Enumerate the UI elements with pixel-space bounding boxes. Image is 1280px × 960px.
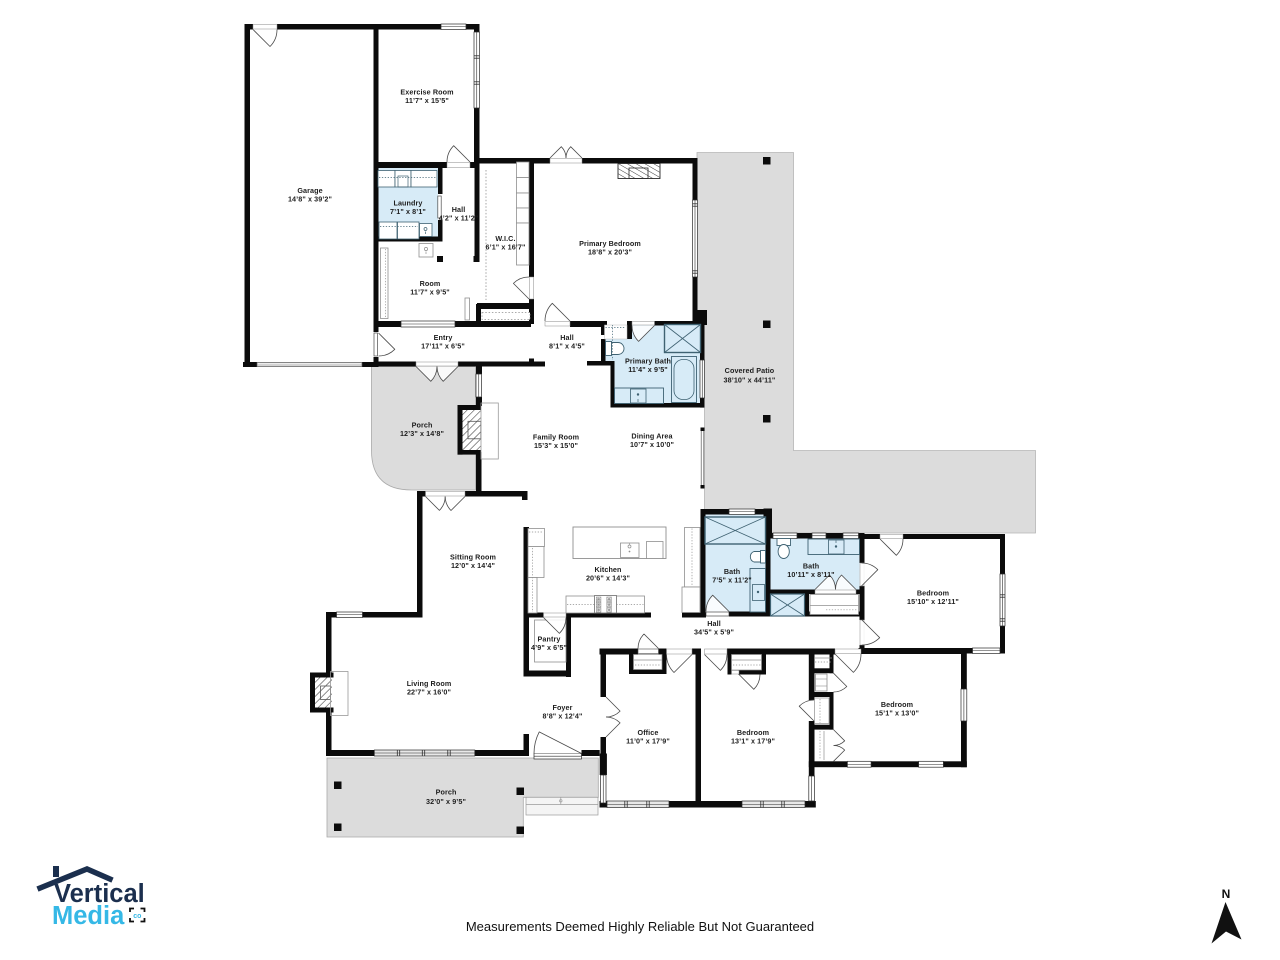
svg-text:8’8" x 12’4": 8’8" x 12’4" <box>543 712 583 721</box>
svg-text:14’8" x 39’2": 14’8" x 39’2" <box>288 195 332 204</box>
svg-text:17’11" x 6’5": 17’11" x 6’5" <box>421 342 465 351</box>
svg-text:Media: Media <box>52 902 125 930</box>
svg-text:Covered Patio: Covered Patio <box>725 366 775 375</box>
svg-text:32’0" x 9’5": 32’0" x 9’5" <box>426 797 466 806</box>
svg-text:Measurements Deemed Highly Rel: Measurements Deemed Highly Reliable But … <box>466 919 814 934</box>
svg-text:11’4" x 9’5": 11’4" x 9’5" <box>628 365 668 374</box>
svg-text:6’1" x 16’7": 6’1" x 16’7" <box>486 243 526 252</box>
svg-text:11’0" x 17’9": 11’0" x 17’9" <box>626 737 670 746</box>
svg-text:co: co <box>133 913 141 920</box>
svg-text:8’1" x 4’5": 8’1" x 4’5" <box>549 342 585 351</box>
svg-text:10’7" x 10’0": 10’7" x 10’0" <box>630 440 674 449</box>
svg-text:7’5" x 11’2": 7’5" x 11’2" <box>712 576 752 585</box>
svg-text:22’7" x 16’0": 22’7" x 16’0" <box>407 688 451 697</box>
svg-text:15’3" x 15’0": 15’3" x 15’0" <box>534 441 578 450</box>
svg-text:20’6" x 14’3": 20’6" x 14’3" <box>586 574 630 583</box>
svg-text:4’9" x 6’5": 4’9" x 6’5" <box>531 643 567 652</box>
svg-text:34’5" x 5’9": 34’5" x 5’9" <box>694 628 734 637</box>
svg-text:15’10" x 12’11": 15’10" x 12’11" <box>907 597 959 606</box>
svg-text:N: N <box>1222 887 1231 901</box>
svg-text:Porch: Porch <box>436 788 457 797</box>
svg-text:13’1" x 17’9": 13’1" x 17’9" <box>731 737 775 746</box>
svg-text:15’1" x 13’0": 15’1" x 13’0" <box>875 708 919 717</box>
svg-text:11’7" x 15’5": 11’7" x 15’5" <box>405 96 449 105</box>
svg-text:18’8" x 20’3": 18’8" x 20’3" <box>588 248 632 257</box>
svg-text:12’0" x 14’4": 12’0" x 14’4" <box>451 561 495 570</box>
svg-text:12’3" x 14’8": 12’3" x 14’8" <box>400 429 444 438</box>
svg-text:7’1" x 8’1": 7’1" x 8’1" <box>390 207 426 216</box>
svg-text:4’2" x 11’2": 4’2" x 11’2" <box>439 214 479 223</box>
svg-text:11’7" x 9’5": 11’7" x 9’5" <box>410 288 450 297</box>
svg-text:38’10" x 44’11": 38’10" x 44’11" <box>724 376 776 385</box>
svg-text:10’11" x 8’11": 10’11" x 8’11" <box>787 570 834 579</box>
